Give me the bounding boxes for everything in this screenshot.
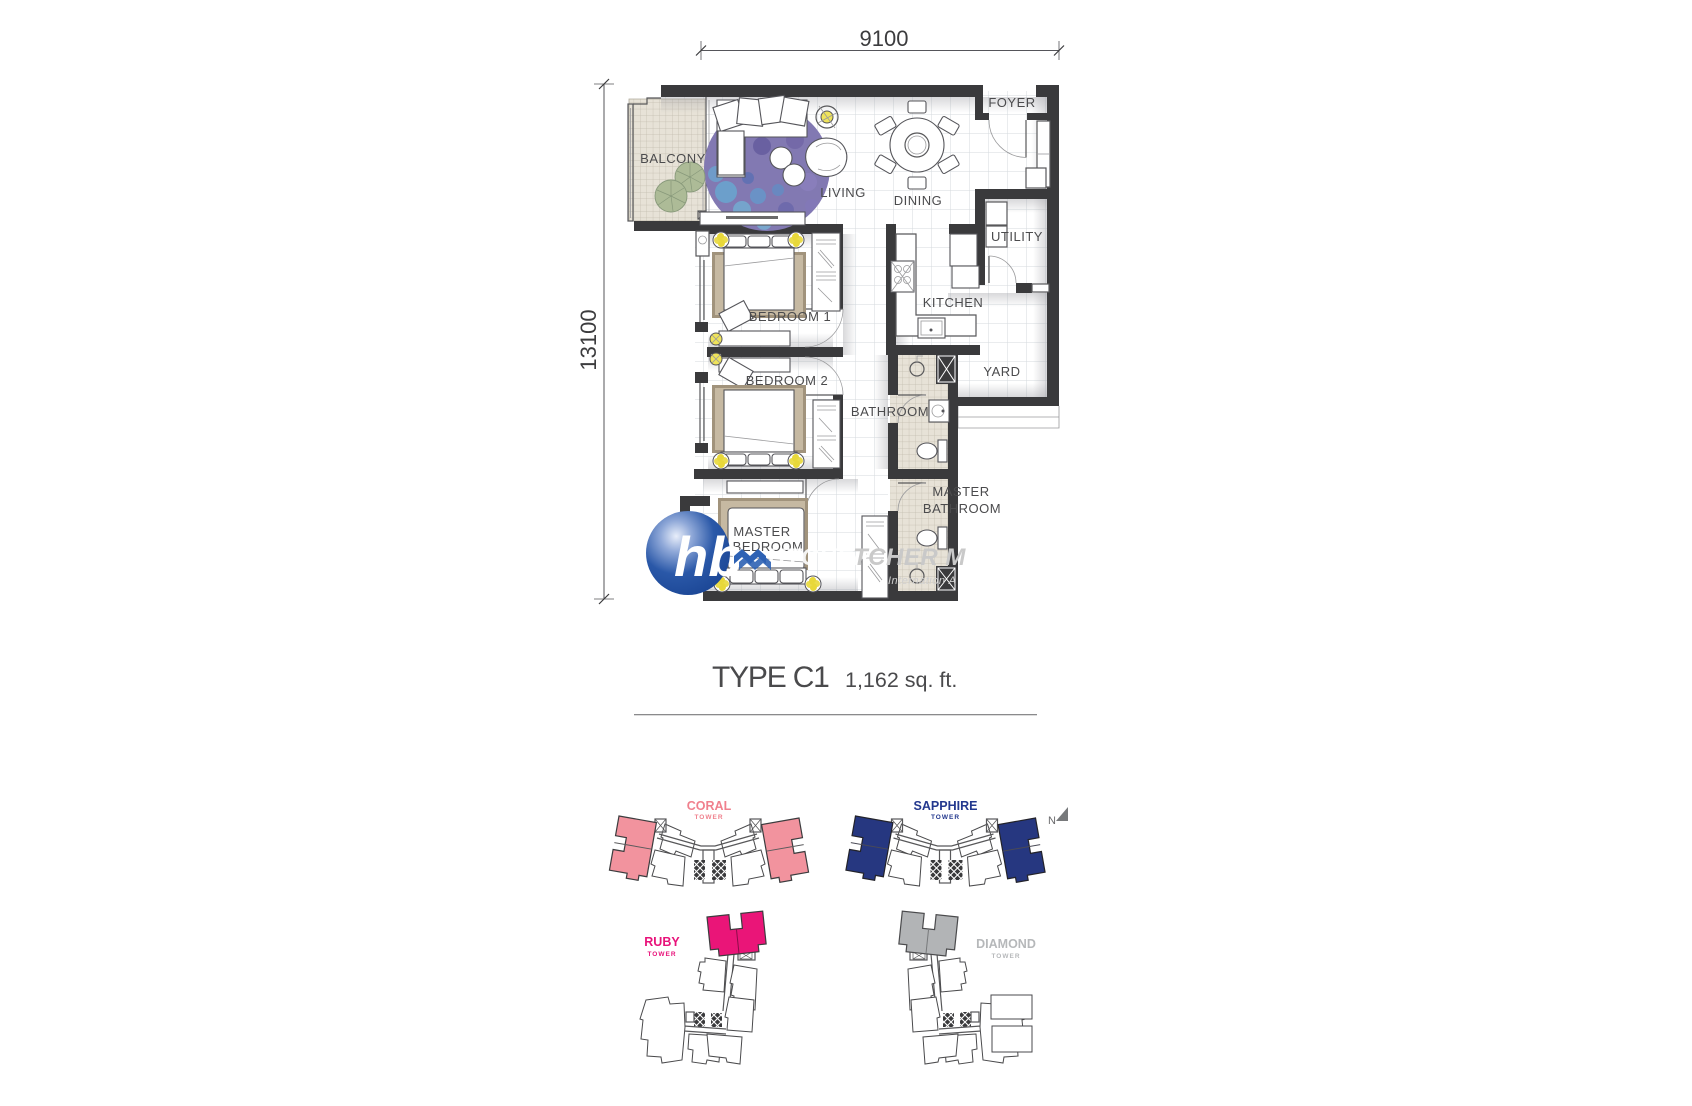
svg-text:TOWER: TOWER: [991, 953, 1020, 960]
svg-text:TOWER: TOWER: [694, 814, 723, 821]
svg-text:LIVING: LIVING: [820, 185, 866, 200]
svg-text:9100: 9100: [860, 26, 909, 51]
svg-text:Internation A: Internation A: [888, 575, 956, 587]
svg-text:BATHROOM: BATHROOM: [851, 404, 929, 419]
svg-text:BEDROOM 1: BEDROOM 1: [749, 309, 832, 324]
svg-text:RUBY: RUBY: [644, 935, 680, 949]
svg-text:TYPE C1: TYPE C1: [712, 661, 829, 694]
svg-text:BATHROOM: BATHROOM: [923, 501, 1001, 516]
svg-text:UTILITY: UTILITY: [991, 229, 1043, 244]
svg-text:DINING: DINING: [894, 193, 943, 208]
svg-text:YARD: YARD: [983, 364, 1020, 379]
svg-text:TCHER M: TCHER M: [853, 544, 966, 571]
svg-text:TOWER: TOWER: [931, 814, 960, 821]
svg-text:CORAL: CORAL: [687, 799, 732, 813]
svg-text:hb: hb: [674, 525, 742, 588]
svg-text:TOWER: TOWER: [647, 951, 676, 958]
svg-text:13100: 13100: [576, 309, 601, 370]
svg-text:KITCHEN: KITCHEN: [923, 295, 984, 310]
svg-text:SAPPHIRE: SAPPHIRE: [914, 799, 978, 813]
svg-text:FOYER: FOYER: [988, 95, 1035, 110]
svg-text:MASTER: MASTER: [932, 484, 989, 499]
svg-text:N: N: [1048, 815, 1056, 827]
svg-text:DIAMOND: DIAMOND: [976, 937, 1036, 951]
svg-text:BEDROOM 2: BEDROOM 2: [746, 373, 829, 388]
svg-text:BALCONY: BALCONY: [640, 151, 706, 166]
svg-text:1,162 sq. ft.: 1,162 sq. ft.: [845, 668, 957, 692]
